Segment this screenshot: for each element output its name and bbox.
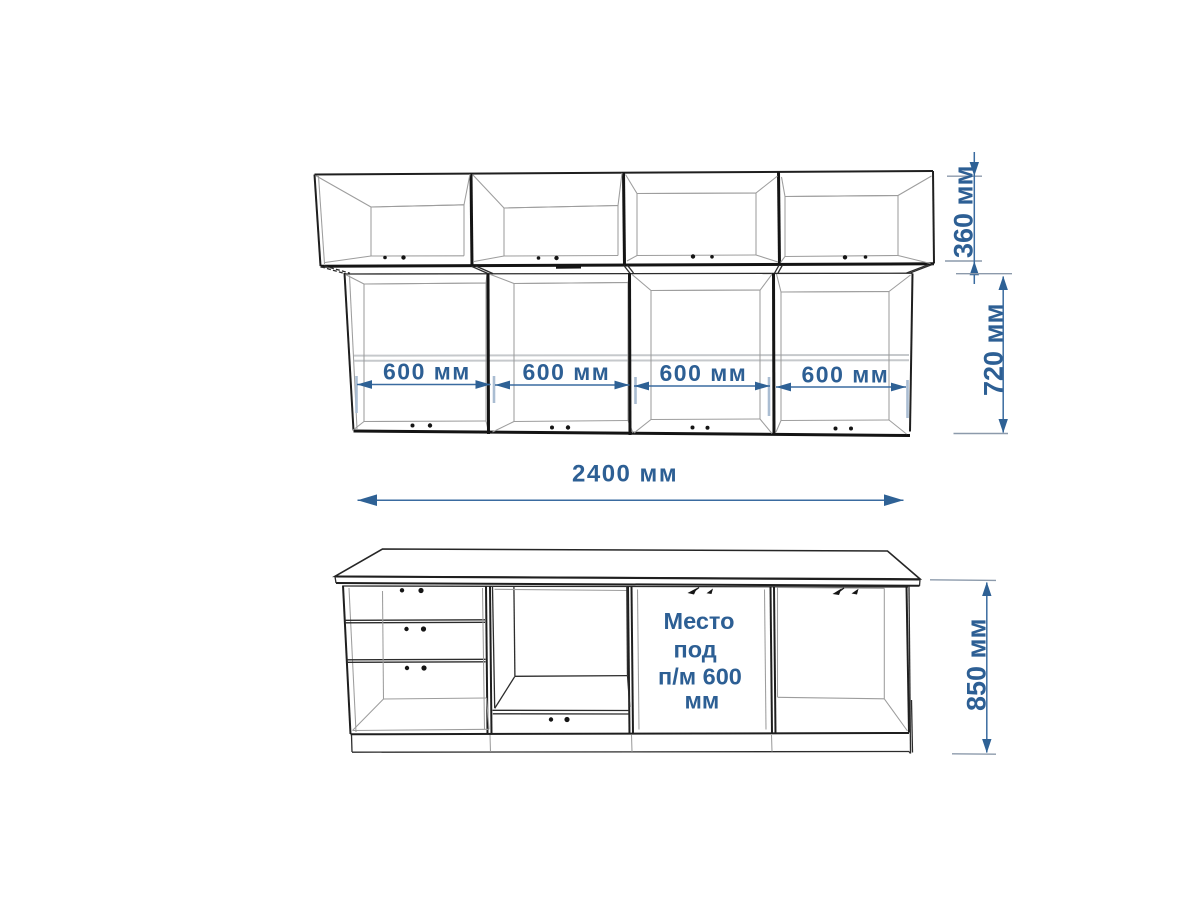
svg-text:п/м 600: п/м 600 xyxy=(658,664,742,690)
svg-text:600 мм: 600 мм xyxy=(660,360,748,386)
svg-text:850 мм: 850 мм xyxy=(962,619,992,712)
svg-text:мм: мм xyxy=(685,688,720,714)
svg-text:2400 мм: 2400 мм xyxy=(572,461,678,488)
svg-text:600 мм: 600 мм xyxy=(383,359,471,385)
svg-text:360 мм: 360 мм xyxy=(949,166,979,259)
svg-text:Место: Место xyxy=(664,608,735,634)
svg-text:600 мм: 600 мм xyxy=(802,362,890,388)
svg-text:под: под xyxy=(674,637,717,663)
svg-text:600 мм: 600 мм xyxy=(523,359,611,385)
svg-text:720 мм: 720 мм xyxy=(979,304,1009,397)
